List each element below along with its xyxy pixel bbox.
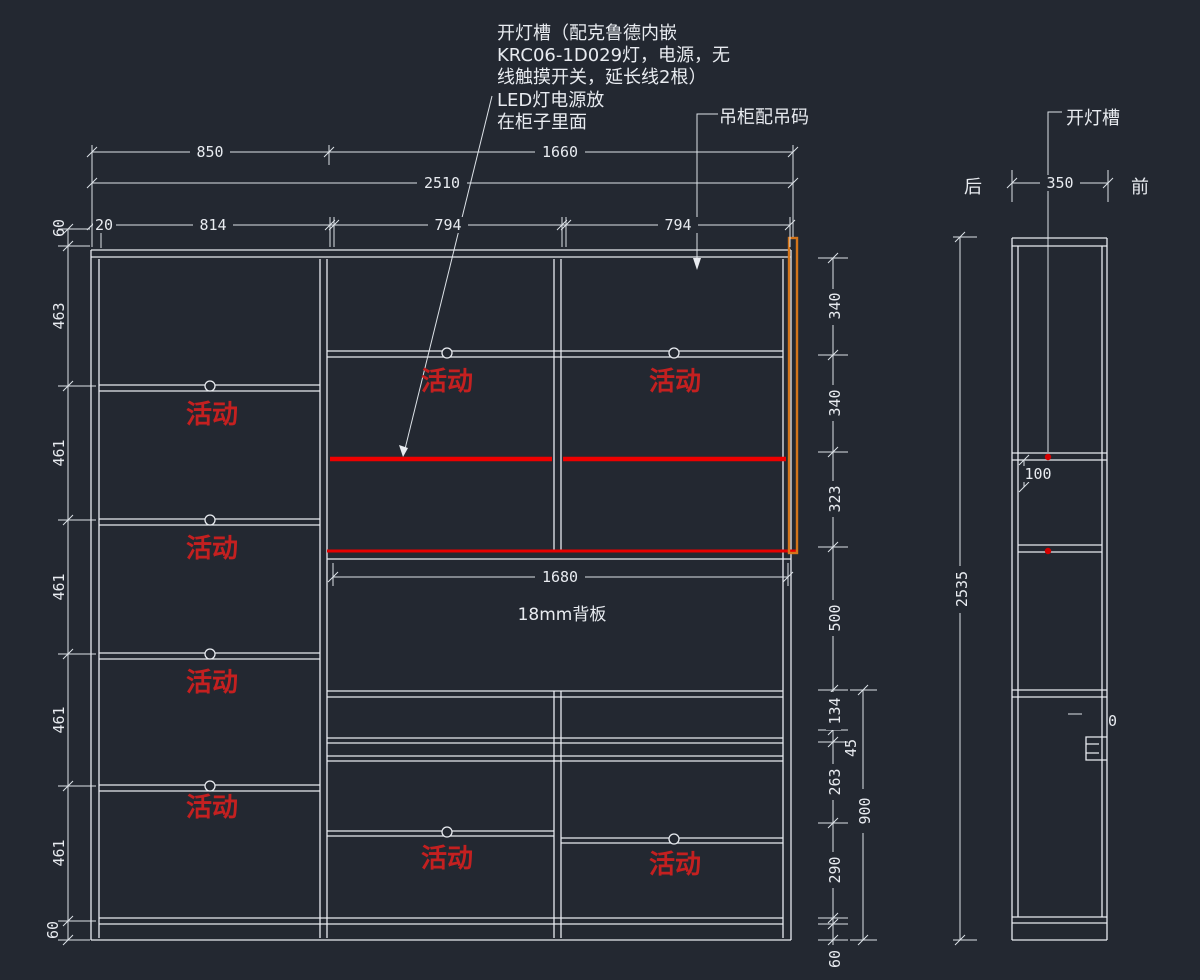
led-note-leader [404, 96, 492, 453]
side-light-slot-leader [1048, 112, 1062, 452]
front-top-dimensions: 850 1660 2510 20 814 794 794 [87, 143, 798, 248]
dim-20: 20 [95, 216, 113, 234]
dim-1660: 1660 [542, 143, 578, 161]
dim-1680-group: 1680 [328, 563, 793, 586]
movable-label: 活动 [186, 793, 238, 823]
led-note-line1: LED灯电源放 [497, 90, 604, 111]
dim-794-right: 794 [664, 216, 691, 234]
movable-label: 活动 [649, 850, 701, 880]
shelf-pin-circle [442, 827, 452, 837]
front-view-cabinet [91, 250, 791, 940]
dim-100: 100 [1024, 465, 1051, 483]
dim-60-bottom-left: 60 [44, 921, 62, 939]
zero-mark: 0 [1108, 712, 1117, 730]
shelf-pin-circle [669, 348, 679, 358]
front-right-dimensions: 340 340 323 500 134 45 263 290 60 900 [818, 253, 877, 968]
movable-label: 活动 [421, 367, 473, 397]
cad-viewport[interactable]: 开灯槽（配克鲁德内嵌 KRC06-1D029灯，电源，无 线触摸开关，延长线2根… [0, 0, 1200, 980]
dim-323: 323 [826, 485, 844, 512]
dim-2510: 2510 [424, 174, 460, 192]
led-light-channel-lines [327, 459, 797, 551]
shelf-pin-circle [205, 381, 215, 391]
dim-340-2: 340 [826, 389, 844, 416]
dim-134: 134 [826, 697, 844, 724]
back-label: 后 [964, 177, 982, 198]
dim-850: 850 [196, 143, 223, 161]
dim-1680: 1680 [542, 568, 578, 586]
dim-794-left: 794 [434, 216, 461, 234]
led-note-line2: 在柜子里面 [497, 112, 587, 133]
hanging-code-note: 吊柜配吊码 [719, 107, 809, 128]
dim-900: 900 [856, 797, 874, 824]
front-left-dimensions: 60 463 461 461 461 461 60 [44, 219, 96, 945]
cabinet-drawing: 开灯槽（配克鲁德内嵌 KRC06-1D029灯，电源，无 线触摸开关，延长线2根… [0, 0, 1200, 980]
light-slot-note-line3: 线触摸开关，延长线2根） [497, 67, 706, 88]
hanging-rail-highlight [789, 238, 797, 553]
door-handle-profile [1086, 737, 1107, 760]
light-slot-note-line1: 开灯槽（配克鲁德内嵌 [497, 23, 677, 44]
movable-label: 活动 [186, 534, 238, 564]
leader-arrowhead [693, 258, 701, 270]
backboard-label: 18mm背板 [518, 605, 607, 625]
shelf-pin-circle [205, 649, 215, 659]
movable-shelf-labels: 活动 活动 活动 活动 活动 活动 活动 活动 [186, 367, 701, 880]
dim-463: 463 [50, 302, 68, 329]
dim-461-1: 461 [50, 439, 68, 466]
side-light-slot-label: 开灯槽 [1066, 108, 1120, 129]
shelf-pin-circle [205, 781, 215, 791]
front-label: 前 [1131, 177, 1149, 198]
dim-60-top: 60 [50, 219, 68, 237]
dim-263: 263 [826, 768, 844, 795]
movable-label: 活动 [649, 367, 701, 397]
shelf-pin-circle [442, 348, 452, 358]
light-slot-note-line2: KRC06-1D029灯，电源，无 [497, 45, 730, 66]
dim-461-4: 461 [50, 839, 68, 866]
shelf-pin-circle [669, 834, 679, 844]
light-slot-marker-dot [1045, 454, 1051, 460]
light-slot-marker-dot [1045, 548, 1051, 554]
movable-label: 活动 [421, 844, 473, 874]
dim-461-2: 461 [50, 573, 68, 600]
movable-label: 活动 [186, 400, 238, 430]
side-view-cabinet: 0 开灯槽 后 前 [964, 108, 1149, 940]
dim-350: 350 [1046, 174, 1073, 192]
dim-290: 290 [826, 856, 844, 883]
dim-461-3: 461 [50, 706, 68, 733]
dim-340-1: 340 [826, 292, 844, 319]
leader-arrowhead [399, 445, 408, 457]
dim-500: 500 [826, 604, 844, 631]
dim-45: 45 [842, 739, 860, 757]
shelf-pin-circle [205, 515, 215, 525]
dim-2535: 2535 [953, 571, 971, 607]
hanging-code-leader [697, 114, 718, 266]
side-view-dimensions: 350 100 2535 [953, 170, 1113, 945]
movable-label: 活动 [186, 668, 238, 698]
dim-60-bottom-right: 60 [826, 950, 844, 968]
dim-814: 814 [199, 216, 226, 234]
